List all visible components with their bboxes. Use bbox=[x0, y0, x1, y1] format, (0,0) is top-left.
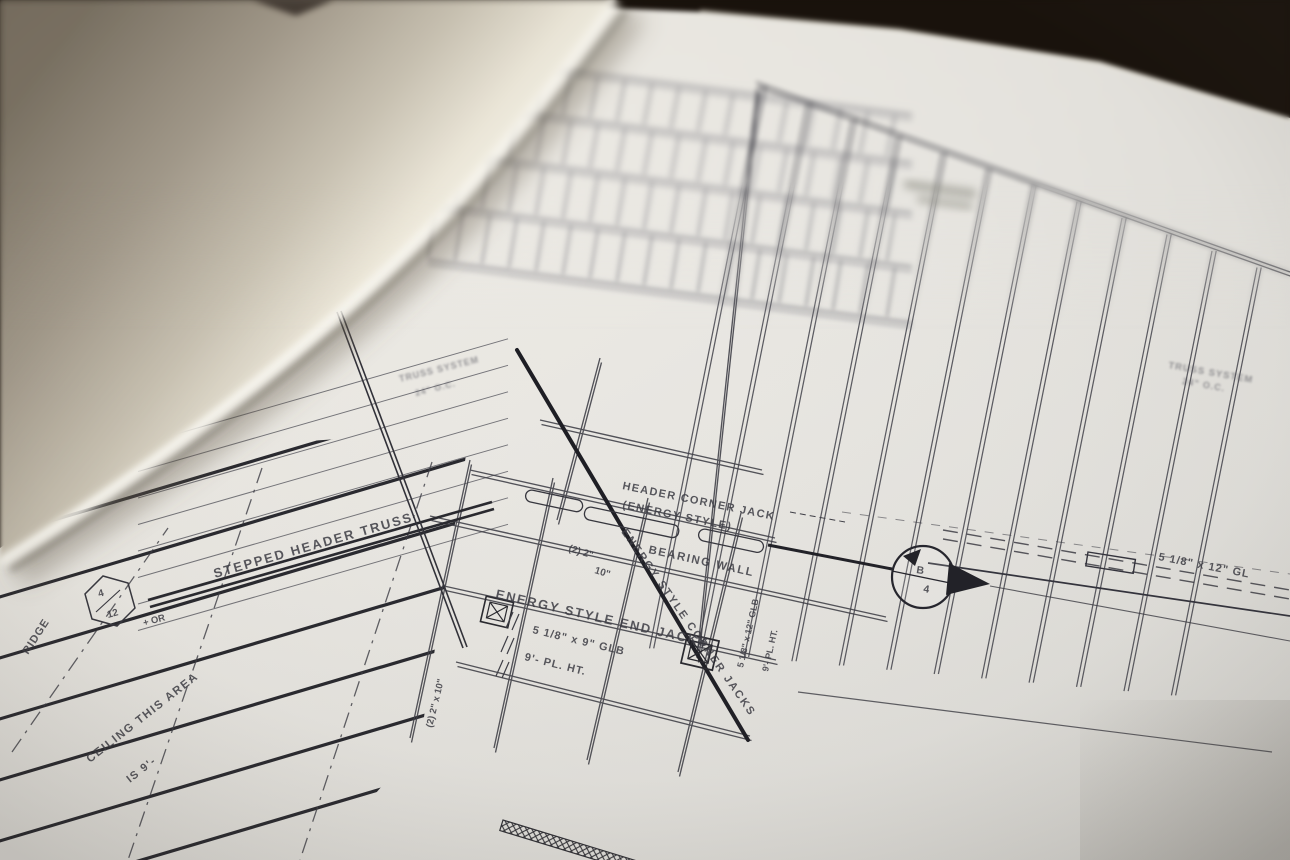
vignette bbox=[0, 0, 1290, 860]
photo-of-blueprint: B 4 bbox=[0, 0, 1290, 860]
blueprint-scene: B 4 bbox=[0, 0, 1290, 860]
